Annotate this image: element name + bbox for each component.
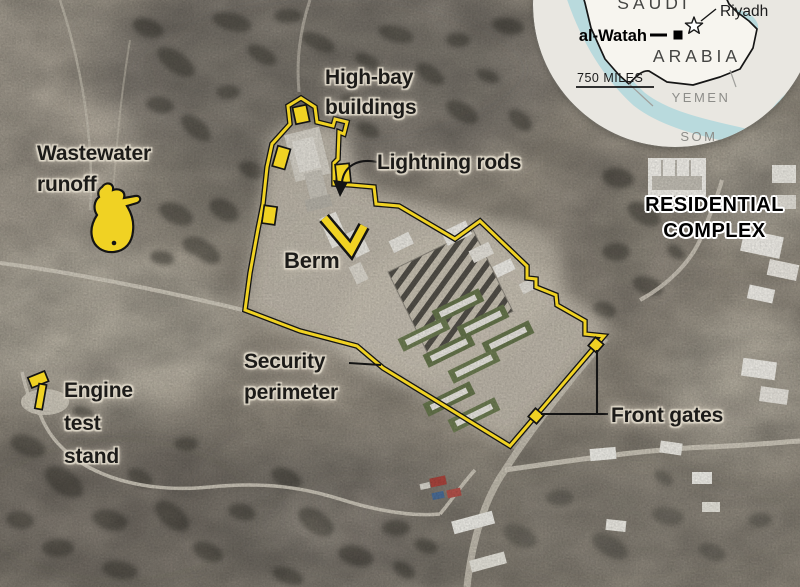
label-lightning-rods: Lightning rods: [377, 148, 521, 178]
label-high-bay-buildings: High-bay buildings: [325, 63, 417, 123]
inset-country-line1: SAUDI: [617, 0, 690, 13]
label-berm: Berm: [284, 246, 339, 276]
inset-somalia-label: SOM.: [680, 129, 723, 144]
label-engine-test-stand: Engine test stand: [64, 374, 133, 473]
inset-scale-label: 750 MILES: [577, 71, 643, 85]
inset-capital-label: Riyadh: [720, 3, 768, 20]
label-security-perimeter: Security perimeter: [244, 346, 338, 408]
inset-country-line2: ARABIA: [653, 46, 741, 66]
inset-site-label: al-Watah: [579, 27, 647, 45]
inset-yemen-label: YEMEN: [672, 90, 731, 105]
annotated-satellite-map: SAUDI ARABIA Riyadh al-Watah 750 MILES Y…: [0, 0, 800, 587]
label-wastewater-runoff: Wastewater runoff: [37, 138, 151, 200]
label-residential-complex: RESIDENTIAL COMPLEX: [622, 192, 800, 244]
label-front-gates: Front gates: [611, 401, 723, 431]
inset-map: SAUDI ARABIA Riyadh al-Watah 750 MILES Y…: [533, 0, 800, 147]
